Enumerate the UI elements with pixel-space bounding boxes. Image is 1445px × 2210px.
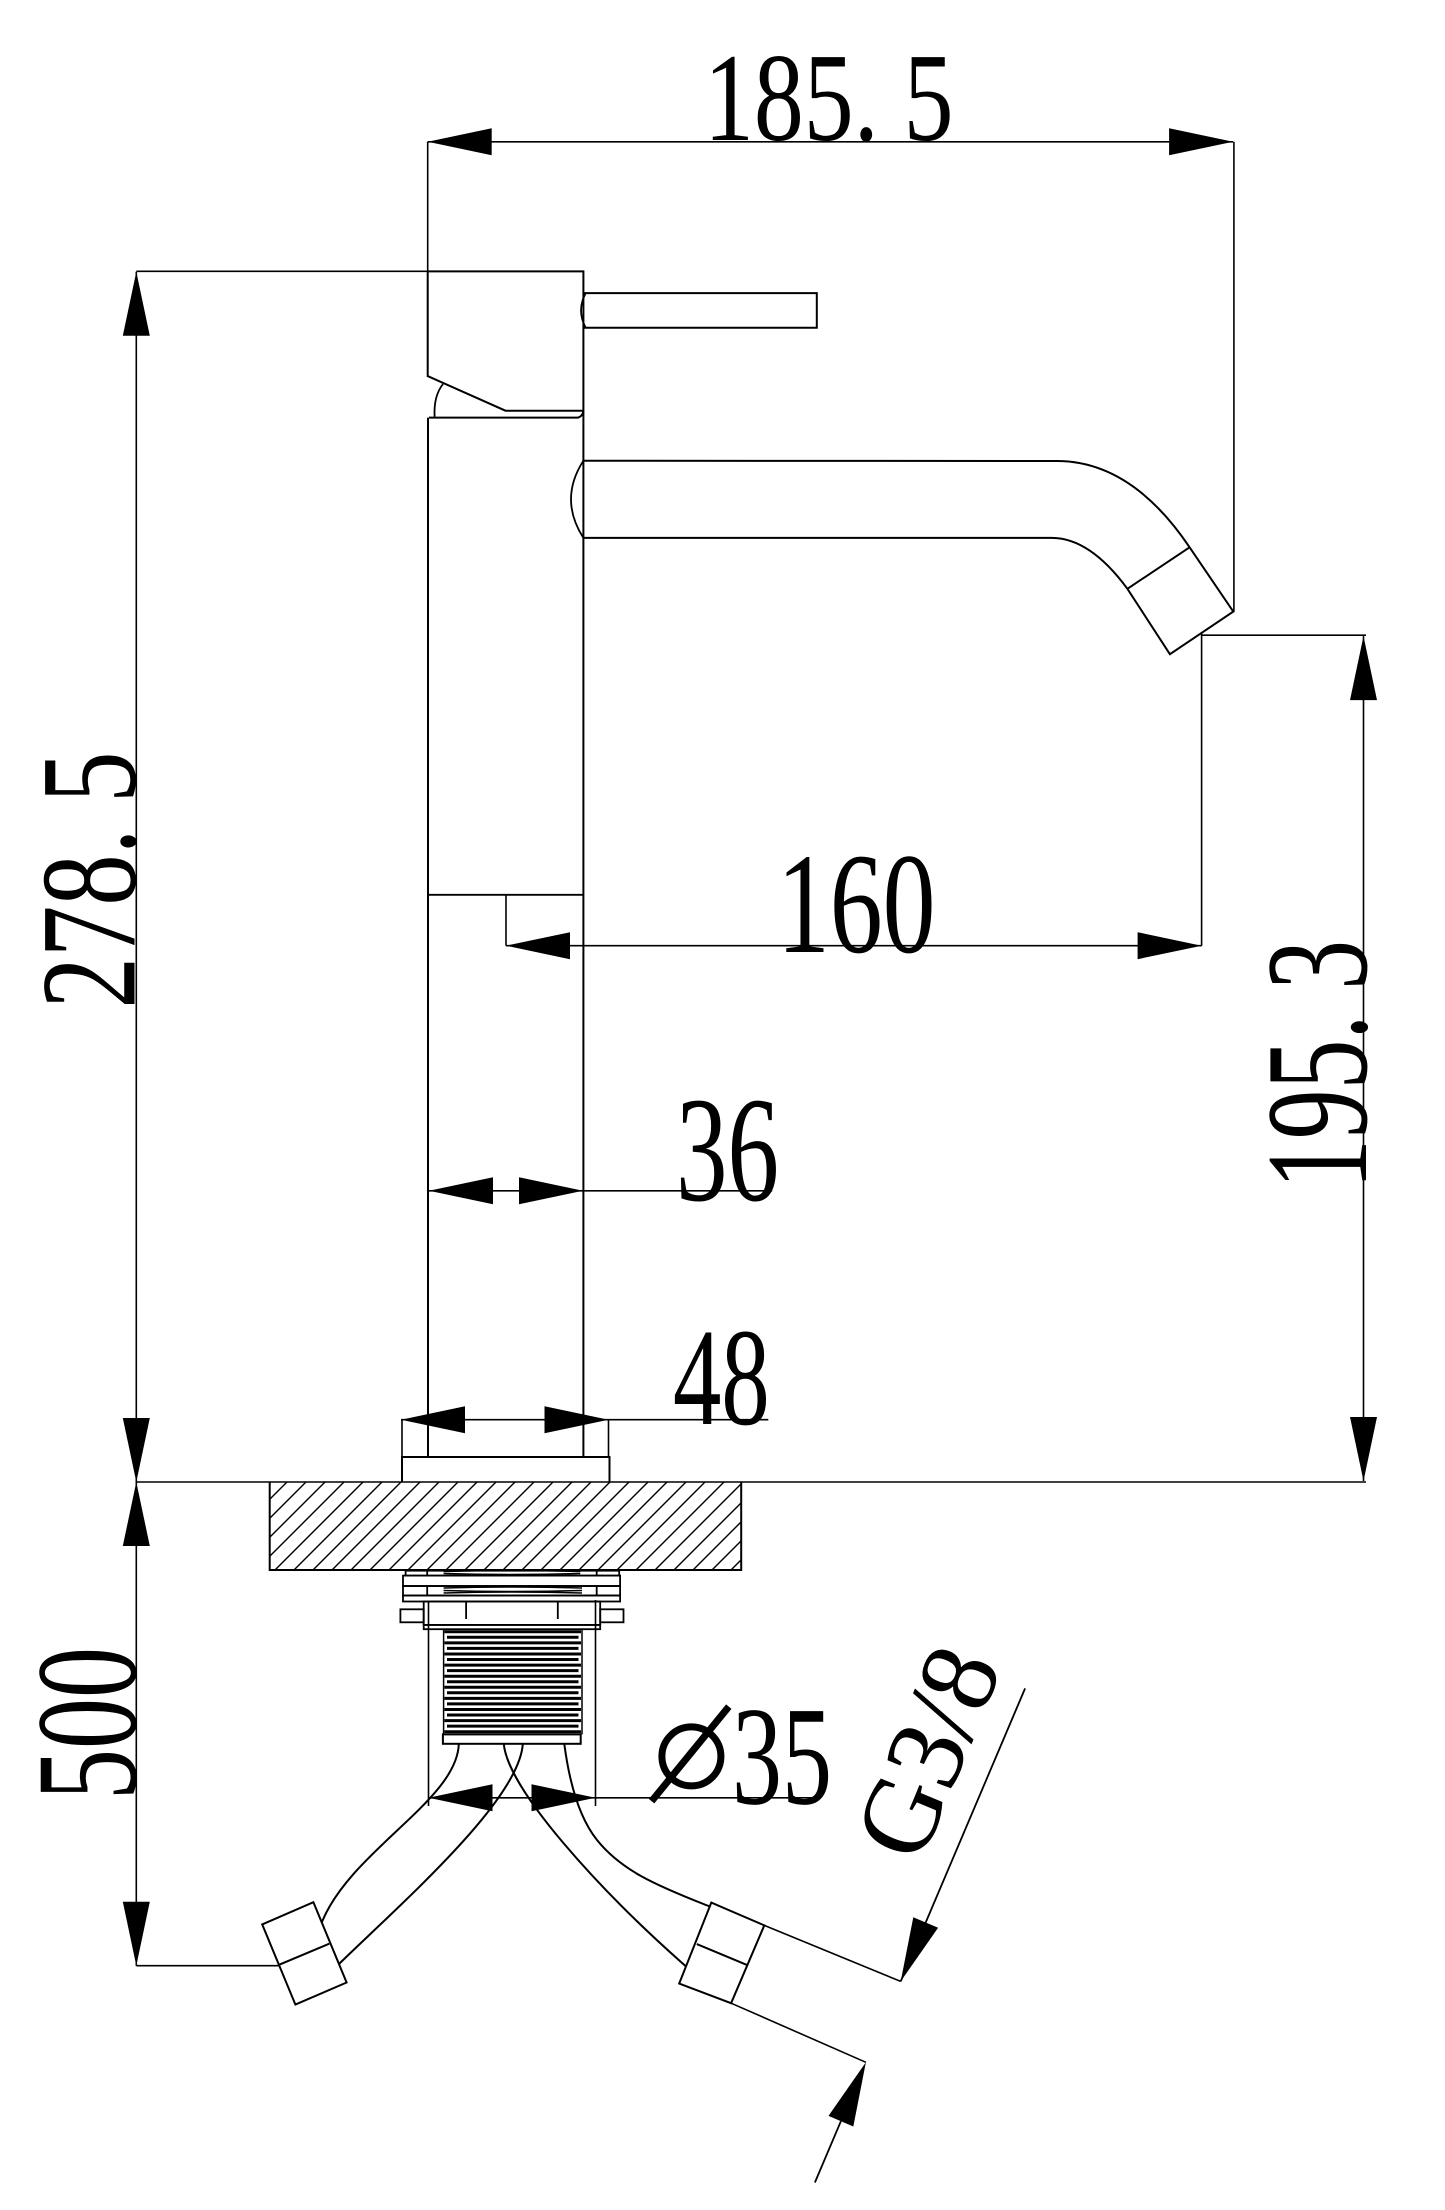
svg-text:36: 36 (676, 1067, 779, 1233)
svg-text:185. 5: 185. 5 (704, 28, 954, 168)
svg-text:500: 500 (8, 1647, 167, 1800)
svg-text:160: 160 (777, 825, 936, 984)
svg-text:35: 35 (732, 1679, 832, 1835)
svg-text:195. 3: 195. 3 (1236, 940, 1398, 1189)
svg-text:278. 5: 278. 5 (13, 752, 165, 1009)
svg-text:48: 48 (673, 1301, 770, 1455)
